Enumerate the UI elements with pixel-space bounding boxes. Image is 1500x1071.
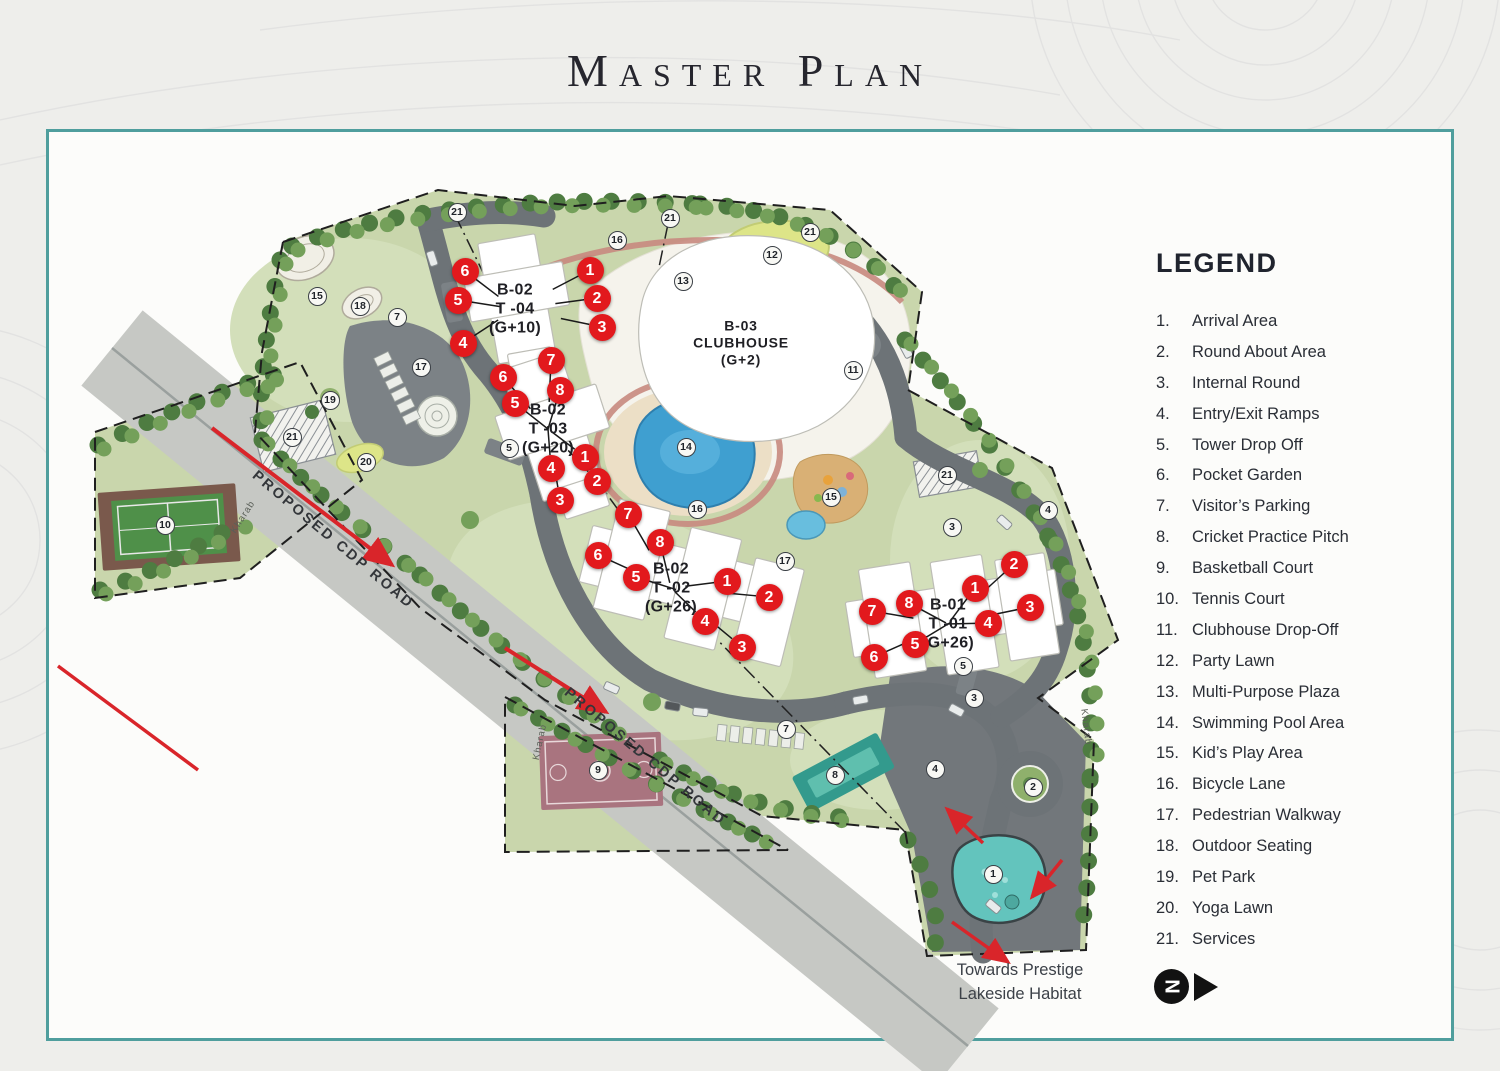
legend-item: 20.Yoga Lawn xyxy=(1156,893,1349,924)
legend-item: 11.Clubhouse Drop-Off xyxy=(1156,615,1349,646)
legend-item: 12.Party Lawn xyxy=(1156,646,1349,677)
legend-item-number: 12. xyxy=(1156,652,1192,671)
legend-item-number: 13. xyxy=(1156,683,1192,702)
legend-item: 1.Arrival Area xyxy=(1156,306,1349,337)
legend-item-number: 18. xyxy=(1156,837,1192,856)
legend-item-label: Pedestrian Walkway xyxy=(1192,806,1341,825)
legend-item: 6.Pocket Garden xyxy=(1156,460,1349,491)
legend-item-number: 15. xyxy=(1156,744,1192,763)
north-indicator: N xyxy=(1154,969,1218,1004)
legend-item-label: Cricket Practice Pitch xyxy=(1192,528,1349,547)
legend-item-number: 7. xyxy=(1156,497,1192,516)
legend-item-number: 19. xyxy=(1156,868,1192,887)
legend-title: LEGEND xyxy=(1156,248,1349,279)
legend-item: 9.Basketball Court xyxy=(1156,553,1349,584)
legend-item-number: 16. xyxy=(1156,775,1192,794)
legend-item: 10.Tennis Court xyxy=(1156,584,1349,615)
legend-item: 2.Round About Area xyxy=(1156,337,1349,368)
legend-item: 3.Internal Round xyxy=(1156,368,1349,399)
legend-item: 16.Bicycle Lane xyxy=(1156,769,1349,800)
legend-item-number: 11. xyxy=(1156,621,1192,640)
legend-item-label: Yoga Lawn xyxy=(1192,899,1273,918)
legend-item: 5.Tower Drop Off xyxy=(1156,430,1349,461)
legend-item-label: Services xyxy=(1192,930,1255,949)
towards-note-line: Lakeside Habitat xyxy=(957,982,1084,1006)
north-arrow-icon xyxy=(1194,973,1218,1001)
legend-item-label: Multi-Purpose Plaza xyxy=(1192,683,1340,702)
legend-item-number: 6. xyxy=(1156,466,1192,485)
legend-item-number: 9. xyxy=(1156,559,1192,578)
legend-item-label: Round About Area xyxy=(1192,343,1326,362)
legend-item: 7.Visitor’s Parking xyxy=(1156,491,1349,522)
legend-item-number: 4. xyxy=(1156,405,1192,424)
legend-item-number: 8. xyxy=(1156,528,1192,547)
legend-list: 1.Arrival Area2.Round About Area3.Intern… xyxy=(1156,306,1349,955)
legend-item: 15.Kid’s Play Area xyxy=(1156,738,1349,769)
legend-item-number: 14. xyxy=(1156,714,1192,733)
towards-note-line: Towards Prestige xyxy=(957,958,1084,982)
legend-item-label: Tower Drop Off xyxy=(1192,436,1303,455)
legend-item-number: 1. xyxy=(1156,312,1192,331)
legend-item-label: Clubhouse Drop-Off xyxy=(1192,621,1338,640)
legend-item-label: Pet Park xyxy=(1192,868,1255,887)
legend-item-number: 20. xyxy=(1156,899,1192,918)
legend-item-number: 3. xyxy=(1156,374,1192,393)
legend-item-label: Bicycle Lane xyxy=(1192,775,1286,794)
legend-item-label: Visitor’s Parking xyxy=(1192,497,1310,516)
legend-item: 18.Outdoor Seating xyxy=(1156,831,1349,862)
legend-item: 13.Multi-Purpose Plaza xyxy=(1156,677,1349,708)
legend-item-label: Basketball Court xyxy=(1192,559,1313,578)
legend-panel: LEGEND 1.Arrival Area2.Round About Area3… xyxy=(1156,248,1349,955)
legend-item-number: 10. xyxy=(1156,590,1192,609)
towards-note: Towards PrestigeLakeside Habitat xyxy=(957,958,1084,1006)
legend-item-label: Pocket Garden xyxy=(1192,466,1302,485)
legend-item-label: Entry/Exit Ramps xyxy=(1192,405,1319,424)
legend-item: 8.Cricket Practice Pitch xyxy=(1156,522,1349,553)
legend-item-number: 21. xyxy=(1156,930,1192,949)
legend-item-number: 2. xyxy=(1156,343,1192,362)
north-disc-icon: N xyxy=(1154,969,1189,1004)
legend-item-label: Swimming Pool Area xyxy=(1192,714,1344,733)
north-letter: N xyxy=(1160,979,1183,993)
legend-item-label: Arrival Area xyxy=(1192,312,1277,331)
legend-item: 21.Services xyxy=(1156,924,1349,955)
legend-item-label: Party Lawn xyxy=(1192,652,1275,671)
legend-item: 19.Pet Park xyxy=(1156,862,1349,893)
legend-item-label: Kid’s Play Area xyxy=(1192,744,1303,763)
legend-item-number: 5. xyxy=(1156,436,1192,455)
legend-item: 4.Entry/Exit Ramps xyxy=(1156,399,1349,430)
legend-item-label: Internal Round xyxy=(1192,374,1300,393)
legend-item-label: Tennis Court xyxy=(1192,590,1285,609)
legend-item: 17.Pedestrian Walkway xyxy=(1156,800,1349,831)
legend-item-number: 17. xyxy=(1156,806,1192,825)
legend-item: 14.Swimming Pool Area xyxy=(1156,708,1349,739)
master-plan-page: Master Plan xyxy=(0,0,1500,1071)
legend-item-label: Outdoor Seating xyxy=(1192,837,1312,856)
